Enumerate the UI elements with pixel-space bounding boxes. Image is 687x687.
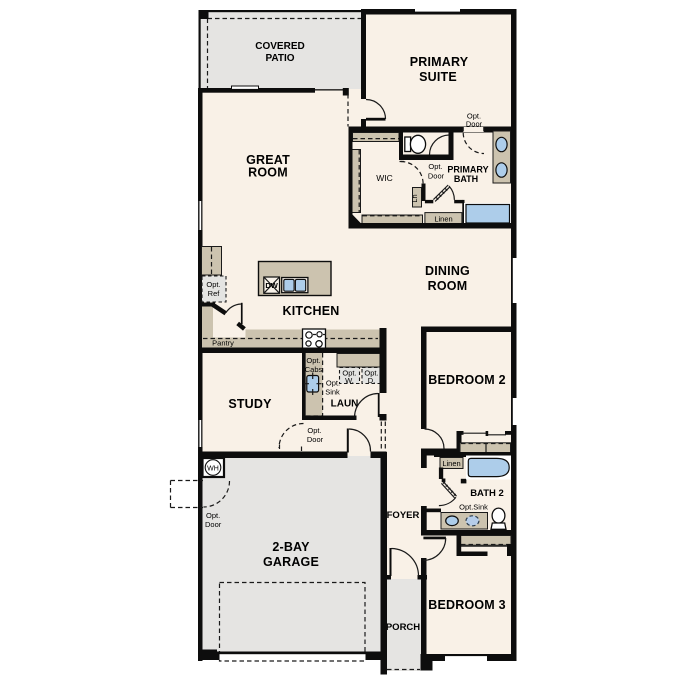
svg-text:FOYER: FOYER bbox=[387, 510, 420, 521]
svg-text:DW: DW bbox=[265, 281, 278, 290]
svg-text:Opt.: Opt. bbox=[428, 162, 442, 171]
svg-text:PATIO: PATIO bbox=[265, 53, 294, 64]
svg-text:BATH 2: BATH 2 bbox=[470, 488, 504, 499]
svg-text:PRIMARY: PRIMARY bbox=[410, 55, 469, 69]
svg-text:Door: Door bbox=[466, 120, 483, 129]
svg-text:KITCHEN: KITCHEN bbox=[283, 304, 340, 318]
svg-text:Linen: Linen bbox=[442, 459, 460, 468]
svg-text:D.: D. bbox=[368, 376, 376, 385]
svg-text:Opt.: Opt. bbox=[206, 280, 220, 289]
svg-text:STUDY: STUDY bbox=[228, 397, 272, 411]
svg-text:Opt.: Opt. bbox=[206, 511, 220, 520]
svg-text:Pantry: Pantry bbox=[212, 339, 234, 348]
svg-text:GARAGE: GARAGE bbox=[263, 555, 319, 569]
svg-text:Sink: Sink bbox=[325, 388, 340, 397]
svg-text:Door: Door bbox=[307, 435, 324, 444]
svg-text:SUITE: SUITE bbox=[419, 70, 457, 84]
svg-text:LAUN: LAUN bbox=[331, 399, 359, 410]
svg-text:ROOM: ROOM bbox=[428, 279, 468, 293]
svg-text:DINING: DINING bbox=[425, 264, 470, 278]
svg-text:BEDROOM 2: BEDROOM 2 bbox=[428, 373, 506, 387]
svg-text:ROOM: ROOM bbox=[248, 166, 288, 180]
svg-text:PRIMARY: PRIMARY bbox=[447, 165, 488, 175]
svg-text:Door: Door bbox=[205, 520, 222, 529]
svg-text:Opt.Sink: Opt.Sink bbox=[459, 503, 488, 512]
svg-text:Linen: Linen bbox=[434, 215, 452, 224]
svg-text:Ln: Ln bbox=[410, 194, 419, 202]
svg-text:WIC: WIC bbox=[376, 173, 393, 183]
svg-text:BEDROOM 3: BEDROOM 3 bbox=[428, 598, 506, 612]
svg-text:Opt.: Opt. bbox=[306, 356, 320, 365]
svg-text:PORCH: PORCH bbox=[386, 622, 420, 633]
svg-text:W.: W. bbox=[345, 376, 354, 385]
svg-text:Opt.: Opt. bbox=[326, 379, 340, 388]
svg-text:Door: Door bbox=[428, 172, 445, 181]
svg-text:COVERED: COVERED bbox=[255, 41, 304, 52]
svg-text:2-BAY: 2-BAY bbox=[272, 540, 310, 554]
svg-text:WH: WH bbox=[207, 466, 219, 473]
svg-text:Opt.: Opt. bbox=[307, 426, 321, 435]
svg-text:Ref: Ref bbox=[208, 289, 221, 298]
svg-text:BATH: BATH bbox=[454, 174, 478, 184]
svg-text:Cabs: Cabs bbox=[305, 365, 323, 374]
